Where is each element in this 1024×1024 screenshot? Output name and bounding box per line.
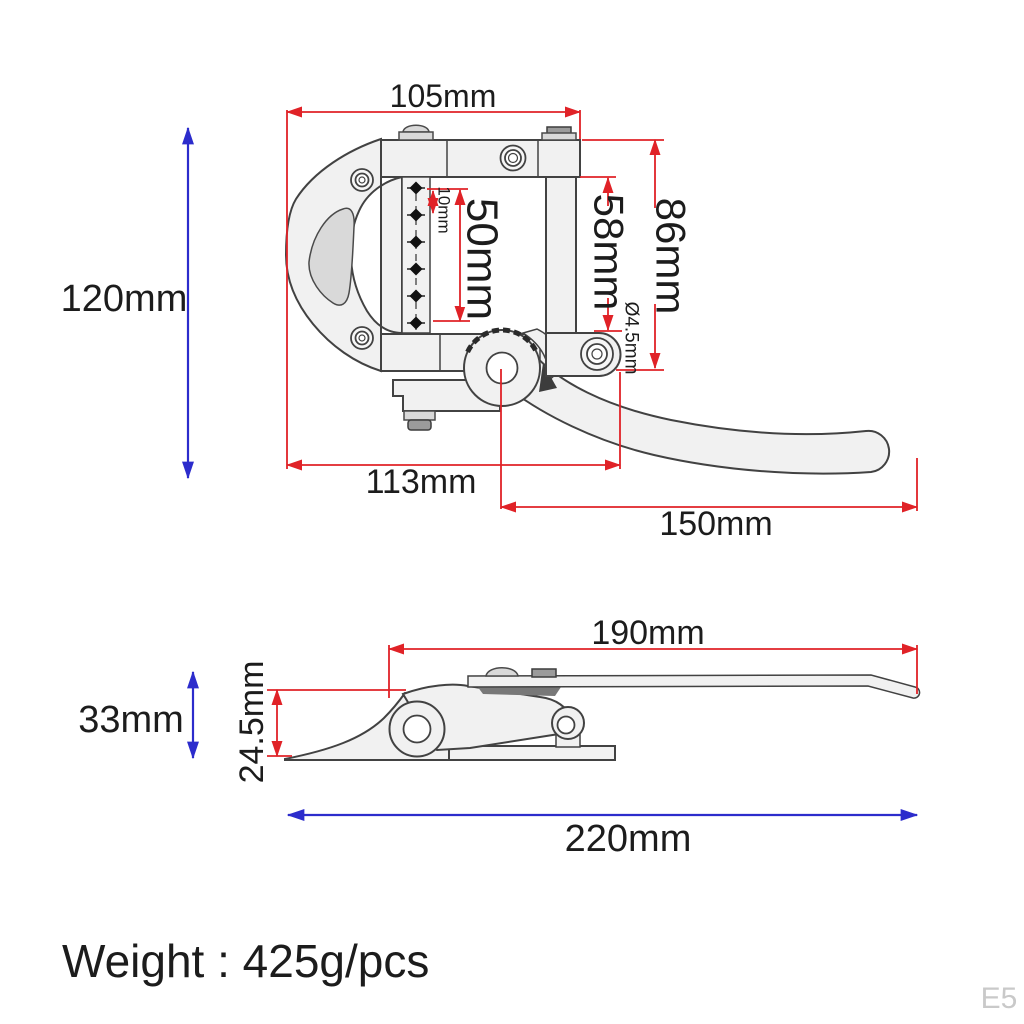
dim-side-arm-length-label: 190mm — [591, 614, 704, 652]
frame-right-bar — [546, 177, 576, 333]
top-screw-flange-small — [542, 133, 576, 140]
dim-arm-length: 150mm — [501, 505, 917, 543]
dim-pin-span-label: 50mm — [458, 198, 507, 320]
watermark-text: E5 — [981, 982, 1018, 1015]
dim-base-width-label: 113mm — [366, 463, 477, 501]
top-bar-hole — [501, 146, 526, 171]
top-screw-flange — [399, 132, 433, 140]
dim-side-height: 33mm — [78, 672, 193, 758]
dim-overall-length-label: 220mm — [565, 818, 692, 860]
dim-overall-height: 120mm — [61, 128, 188, 478]
dim-side-arm-length: 190mm — [389, 614, 917, 652]
side-pivot-hole — [404, 716, 431, 743]
dim-inner-height-label: 58mm — [586, 194, 633, 311]
dim-pin-pitch-label: 10mm — [435, 186, 454, 233]
top-screw-cap — [403, 125, 429, 132]
clamp-screw-head — [408, 420, 431, 430]
side-lug-hole — [558, 717, 575, 734]
dim-hole-diameter-label: Ø4.5mm — [621, 302, 642, 375]
diagram-page: 105mm 120mm 86mm 58mm 50mm — [0, 0, 1024, 1024]
dim-arm-length-label: 150mm — [659, 505, 772, 543]
side-view — [285, 668, 920, 760]
side-screw-dome — [486, 668, 518, 676]
side-screw-cap-small — [532, 669, 556, 677]
dim-body-height-label: 24.5mm — [233, 661, 271, 784]
tremolo-dimension-diagram: 105mm 120mm 86mm 58mm 50mm — [0, 0, 1024, 1024]
dim-frame-height-label: 86mm — [648, 198, 695, 315]
dim-overall-length: 220mm — [288, 815, 917, 860]
frame-screw-hole — [351, 169, 373, 191]
dim-overall-height-label: 120mm — [61, 278, 188, 320]
dim-side-height-label: 33mm — [78, 699, 184, 741]
pivot-hole — [487, 353, 518, 384]
lug-hole — [581, 338, 613, 370]
dim-base-width: 113mm — [287, 463, 620, 501]
frame-top-bar — [381, 140, 580, 177]
weight-label: Weight : 425g/pcs — [62, 935, 429, 987]
dim-top-width: 105mm — [287, 78, 580, 114]
dim-top-width-label: 105mm — [390, 78, 497, 114]
frame-screw-hole — [351, 327, 373, 349]
dim-pin-pitch: 10mm — [433, 186, 454, 233]
clamp-screw-flange — [404, 411, 435, 420]
